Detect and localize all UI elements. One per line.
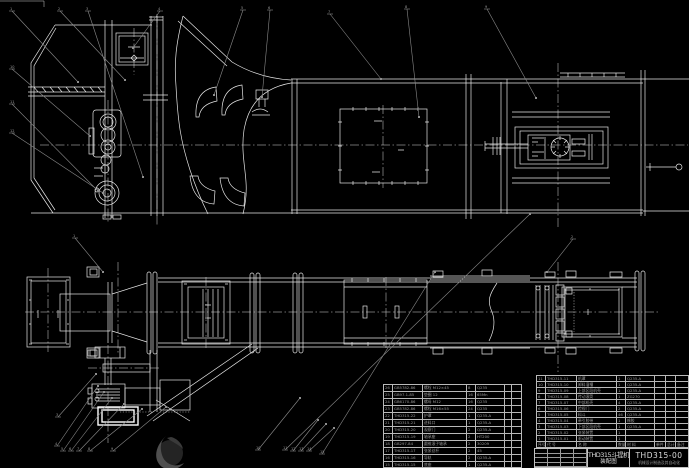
- balloon-number: 10: [10, 65, 14, 69]
- table-row: 18GB297-84圆锥滚子轴承230209: [384, 441, 521, 448]
- drawing-sheet: 123456789101112123456789101112131415 26G…: [0, 0, 689, 468]
- balloon-number: 7: [328, 10, 330, 14]
- balloon-number: 2: [58, 7, 60, 11]
- table-row: 16THD315-16导轨2Q235-A: [384, 455, 521, 462]
- drawing-type: 装配图: [600, 459, 617, 466]
- balloon-number: 9: [111, 447, 113, 451]
- balloon-number: 10: [256, 446, 260, 450]
- balloon-number: 11: [10, 100, 14, 104]
- balloon-number: 12: [291, 447, 295, 451]
- balloon-number: 1: [10, 7, 12, 11]
- table-row: 20THD315-20观察门2Q235-A: [384, 427, 521, 434]
- balloon-number: 6: [69, 447, 71, 451]
- balloon-number: 7: [77, 447, 79, 451]
- org-line: 机械设计制造及其自动化: [638, 460, 680, 466]
- signature-grid: [534, 448, 588, 468]
- balloon-number: 8: [405, 5, 407, 9]
- product-title: THD315斗提机: [588, 451, 629, 459]
- balloon-number: 11: [283, 446, 287, 450]
- balloon-number: 13: [299, 447, 303, 451]
- bom-table-continuation: 26GB5782-86螺栓 M12×458Q23525GB97.1-85垫圈 1…: [383, 384, 522, 468]
- balloon-number: 14: [307, 447, 312, 451]
- balloon-number: 9: [485, 5, 487, 9]
- balloon-number: 3: [56, 413, 58, 417]
- balloon-number: 5: [241, 6, 243, 10]
- watermark-crescent: [156, 436, 184, 468]
- balloon-number: 6: [268, 6, 270, 10]
- balloon-number: 8: [88, 447, 90, 451]
- table-row: 17THD315-17张紧丝杆245: [384, 448, 521, 455]
- table-row: 19THD315-19轴承座2HT200: [384, 434, 521, 441]
- balloon-number: 4: [158, 7, 161, 11]
- title-block-number: THD315-00 机械设计制造及其自动化: [629, 448, 689, 468]
- drawing-number: THD315-00: [635, 451, 682, 460]
- table-row: 25GB97.1-85垫圈 121665Mn: [384, 392, 521, 399]
- drive-base-plate: [98, 407, 138, 425]
- balloon-number: 15: [320, 450, 324, 454]
- sheet-frame-corner: [0, 1, 44, 7]
- bom-table-main: 11THD315-11机罩1Q235-A10THD315-10卸料溜槽1Q235…: [536, 375, 689, 448]
- title-block-name: THD315斗提机 装配图: [587, 448, 630, 468]
- table-row: 21THD315-21进料口1Q235-A: [384, 420, 521, 427]
- table-row: 26GB5782-86螺栓 M12×458Q235: [384, 385, 521, 392]
- elevation-view: [28, 16, 689, 219]
- balloon-number: 12: [10, 129, 14, 133]
- table-row: 22THD315-22护罩1Q235-A: [384, 413, 521, 420]
- balloon-number: 3: [86, 7, 88, 11]
- balloon-number: 2: [571, 235, 573, 239]
- table-row: 24GB6170-86螺母 M1216Q235: [384, 399, 521, 406]
- balloon-number: 5: [61, 447, 63, 451]
- table-row: 15THD315-15底座1Q235-A: [384, 462, 521, 468]
- balloon-number: 1: [73, 234, 75, 238]
- table-row: 23GB5782-86螺栓 M16×5524Q235: [384, 406, 521, 413]
